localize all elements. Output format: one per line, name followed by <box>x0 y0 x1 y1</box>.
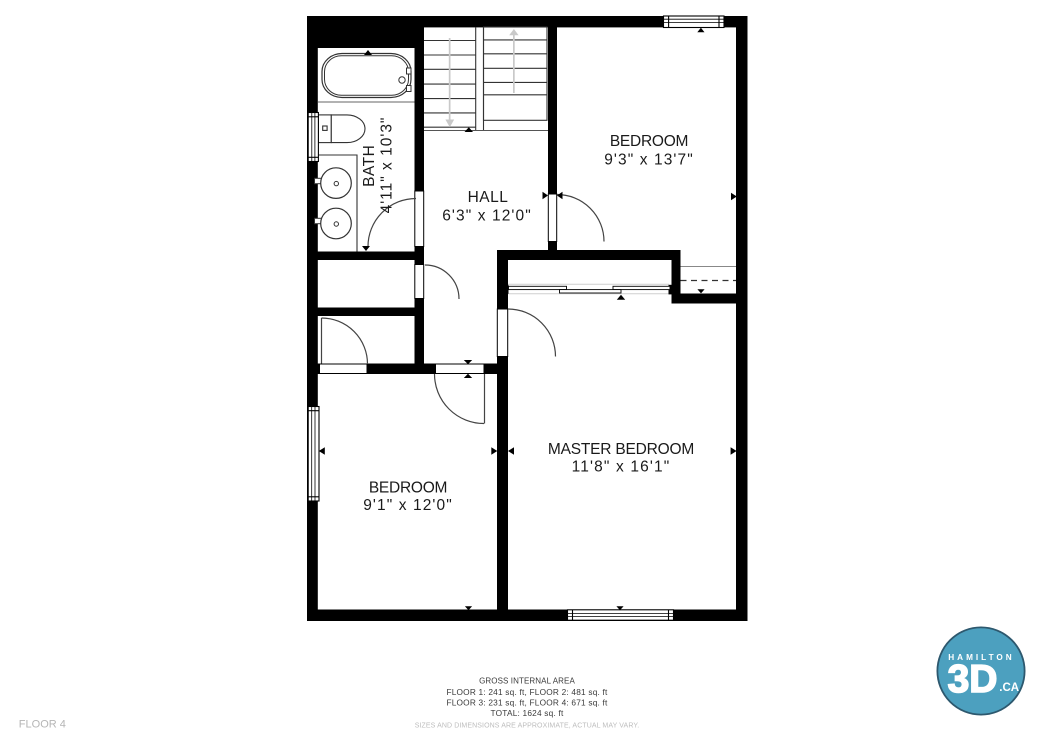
svg-text:9'1" x 12'0": 9'1" x 12'0" <box>363 497 453 514</box>
svg-text:SIZES AND DIMENSIONS ARE APPRO: SIZES AND DIMENSIONS ARE APPROXIMATE, AC… <box>415 723 640 730</box>
svg-text:.CA: .CA <box>999 682 1019 694</box>
svg-text:BATH: BATH <box>361 145 378 187</box>
svg-text:FLOOR 1: 241 sq. ft, FLOOR 2:: FLOOR 1: 241 sq. ft, FLOOR 2: 481 sq. ft <box>446 687 608 697</box>
svg-text:GROSS INTERNAL AREA: GROSS INTERNAL AREA <box>479 677 575 686</box>
svg-text:HALL: HALL <box>468 189 509 206</box>
svg-text:BEDROOM: BEDROOM <box>610 133 688 150</box>
svg-text:3D: 3D <box>948 658 998 701</box>
svg-text:11'8" x 16'1": 11'8" x 16'1" <box>572 459 671 476</box>
svg-text:FLOOR 3: 231 sq. ft, FLOOR 4:: FLOOR 3: 231 sq. ft, FLOOR 4: 671 sq. ft <box>446 698 608 708</box>
svg-text:BEDROOM: BEDROOM <box>369 480 447 497</box>
svg-text:MASTER BEDROOM: MASTER BEDROOM <box>548 441 694 458</box>
svg-text:4'11" x 10'3": 4'11" x 10'3" <box>379 117 396 214</box>
svg-text:9'3" x 13'7": 9'3" x 13'7" <box>604 152 694 169</box>
svg-text:FLOOR 4: FLOOR 4 <box>19 719 66 731</box>
svg-text:6'3" x 12'0": 6'3" x 12'0" <box>442 208 532 225</box>
svg-text:TOTAL: 1624 sq. ft: TOTAL: 1624 sq. ft <box>491 708 564 718</box>
